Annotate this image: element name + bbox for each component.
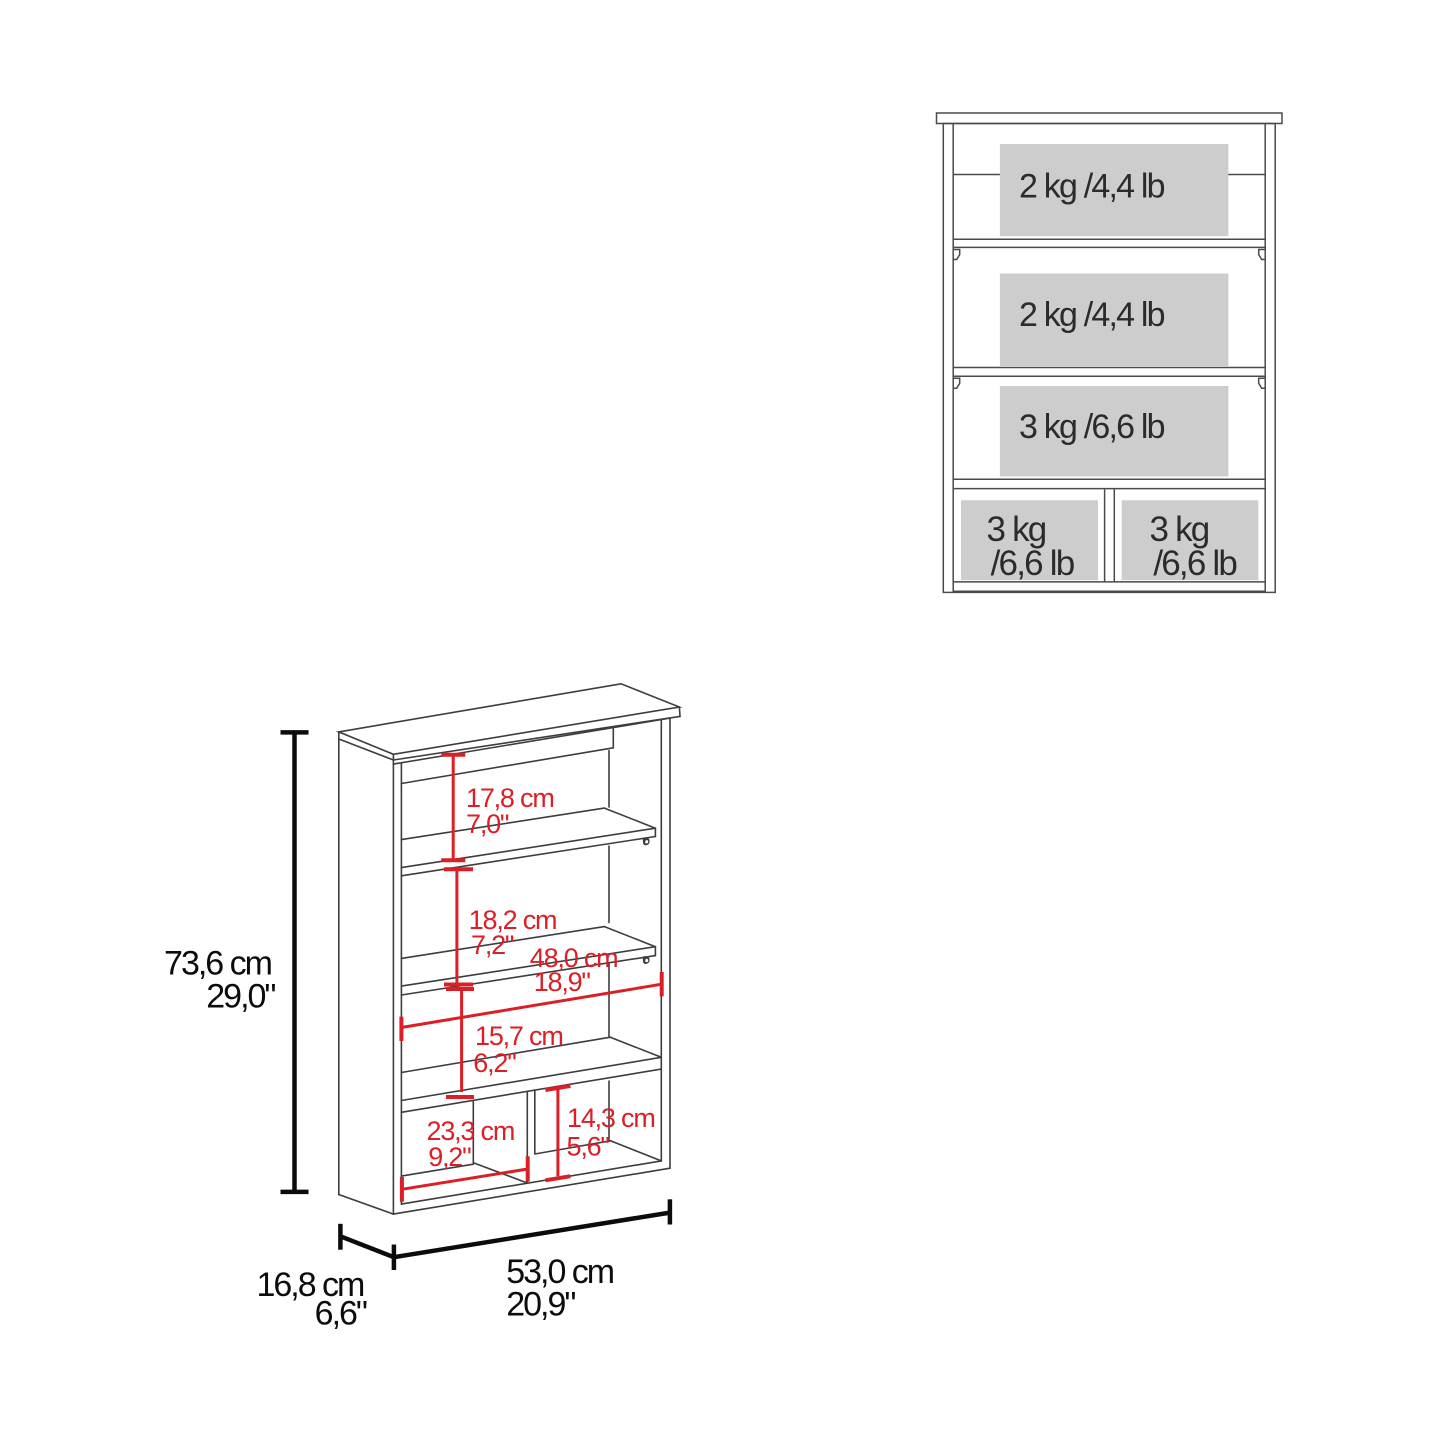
svg-text:15,7 cm: 15,7 cm bbox=[475, 1021, 563, 1051]
svg-text:2 kg /4,4 lb: 2 kg /4,4 lb bbox=[1019, 296, 1165, 334]
svg-text:20,9": 20,9" bbox=[506, 1286, 575, 1324]
svg-text:7,2": 7,2" bbox=[471, 930, 514, 960]
svg-text:/6,6 lb: /6,6 lb bbox=[991, 544, 1074, 583]
svg-text:2 kg /4,4 lb: 2 kg /4,4 lb bbox=[1019, 168, 1165, 206]
svg-text:7,0": 7,0" bbox=[466, 809, 509, 839]
svg-text:6,6": 6,6" bbox=[315, 1295, 367, 1333]
svg-text:18,9": 18,9" bbox=[534, 967, 591, 997]
svg-text:29,0": 29,0" bbox=[206, 978, 275, 1016]
svg-text:5,6": 5,6" bbox=[567, 1132, 610, 1162]
svg-text:9,2": 9,2" bbox=[428, 1142, 471, 1172]
svg-text:14,3 cm: 14,3 cm bbox=[567, 1103, 655, 1133]
svg-text:6,2": 6,2" bbox=[473, 1048, 516, 1078]
svg-text:/6,6 lb: /6,6 lb bbox=[1153, 544, 1236, 583]
svg-text:3 kg /6,6 lb: 3 kg /6,6 lb bbox=[1019, 408, 1165, 446]
